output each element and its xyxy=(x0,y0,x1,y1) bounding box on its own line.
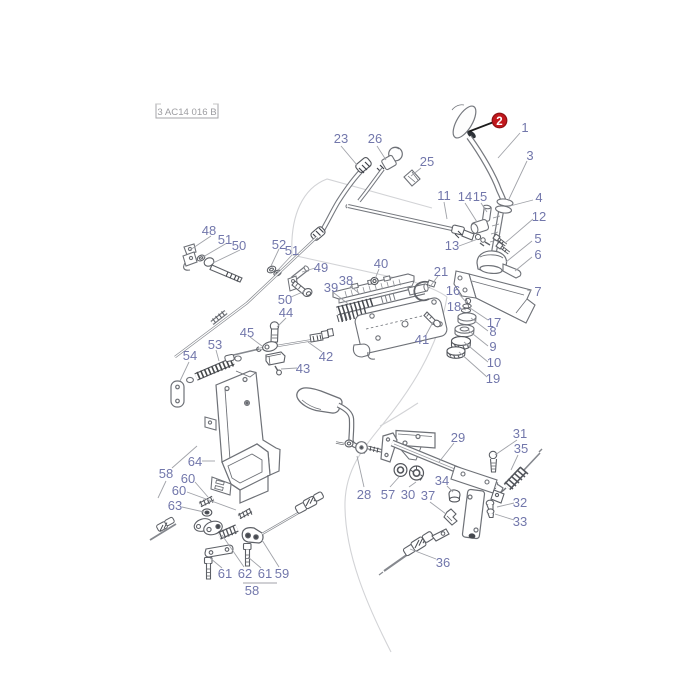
svg-text:58: 58 xyxy=(159,466,173,481)
svg-text:42: 42 xyxy=(319,349,333,364)
svg-text:64: 64 xyxy=(188,454,202,469)
svg-text:49: 49 xyxy=(314,260,328,275)
svg-text:39: 39 xyxy=(324,280,338,295)
svg-text:15: 15 xyxy=(473,189,487,204)
svg-text:35: 35 xyxy=(514,441,528,456)
svg-text:18: 18 xyxy=(447,299,461,314)
svg-text:12: 12 xyxy=(532,209,546,224)
svg-text:33: 33 xyxy=(513,514,527,529)
svg-text:32: 32 xyxy=(513,495,527,510)
svg-text:4: 4 xyxy=(535,190,542,205)
svg-text:34: 34 xyxy=(435,473,449,488)
svg-text:10: 10 xyxy=(487,355,501,370)
svg-text:1: 1 xyxy=(521,120,528,135)
svg-text:9: 9 xyxy=(489,339,496,354)
svg-text:5: 5 xyxy=(534,231,541,246)
svg-text:3: 3 xyxy=(526,148,533,163)
svg-text:61: 61 xyxy=(218,566,232,581)
svg-text:51: 51 xyxy=(285,243,299,258)
svg-text:13: 13 xyxy=(445,238,459,253)
svg-text:36: 36 xyxy=(436,555,450,570)
svg-text:44: 44 xyxy=(279,305,293,320)
svg-text:43: 43 xyxy=(296,361,310,376)
svg-text:7: 7 xyxy=(534,284,541,299)
svg-text:57: 57 xyxy=(381,487,395,502)
svg-text:31: 31 xyxy=(513,426,527,441)
svg-text:30: 30 xyxy=(401,487,415,502)
svg-text:8: 8 xyxy=(489,324,496,339)
svg-text:11: 11 xyxy=(437,188,451,203)
svg-text:50: 50 xyxy=(232,238,246,253)
svg-text:26: 26 xyxy=(368,131,382,146)
svg-text:3 AC14 016 B: 3 AC14 016 B xyxy=(157,107,216,118)
svg-text:60: 60 xyxy=(172,483,186,498)
svg-text:14: 14 xyxy=(458,189,472,204)
svg-text:62: 62 xyxy=(238,566,252,581)
svg-text:53: 53 xyxy=(208,337,222,352)
svg-text:28: 28 xyxy=(357,487,371,502)
svg-text:25: 25 xyxy=(420,154,434,169)
svg-text:19: 19 xyxy=(486,371,500,386)
svg-text:23: 23 xyxy=(334,131,348,146)
svg-text:16: 16 xyxy=(446,283,460,298)
svg-text:37: 37 xyxy=(421,488,435,503)
svg-text:38: 38 xyxy=(339,273,353,288)
svg-text:54: 54 xyxy=(183,348,197,363)
svg-text:40: 40 xyxy=(374,256,388,271)
svg-text:2: 2 xyxy=(496,116,502,128)
svg-text:21: 21 xyxy=(434,264,448,279)
svg-text:58: 58 xyxy=(245,583,259,598)
svg-text:59: 59 xyxy=(275,566,289,581)
svg-text:45: 45 xyxy=(240,325,254,340)
svg-text:61: 61 xyxy=(258,566,272,581)
svg-text:51: 51 xyxy=(218,232,232,247)
svg-text:41: 41 xyxy=(415,332,429,347)
svg-text:29: 29 xyxy=(451,430,465,445)
svg-text:48: 48 xyxy=(202,223,216,238)
svg-text:6: 6 xyxy=(534,247,541,262)
svg-text:63: 63 xyxy=(168,498,182,513)
